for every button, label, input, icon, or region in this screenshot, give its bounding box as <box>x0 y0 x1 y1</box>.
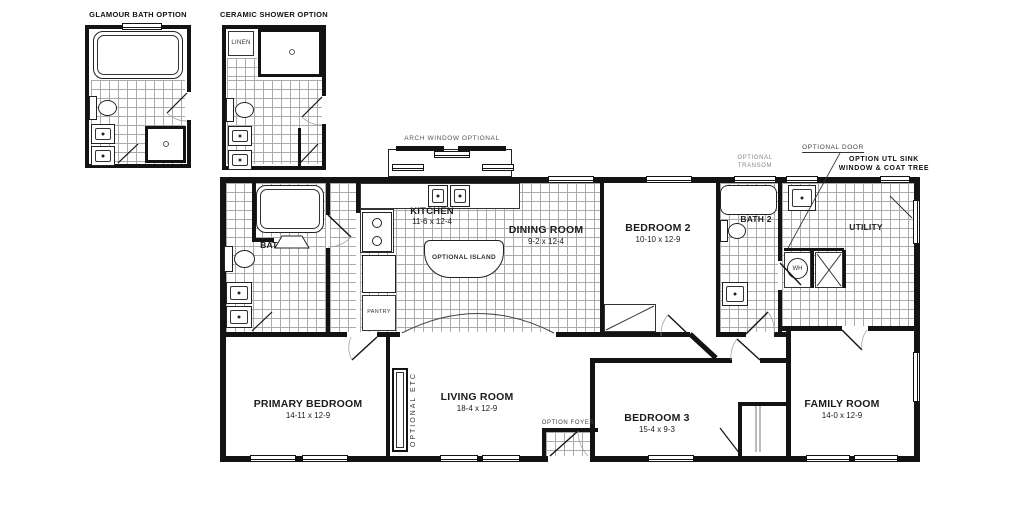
floorplan-canvas: GLAMOUR BATH OPTION CERAMIC SHOWER OPTIO… <box>0 0 1024 509</box>
primary-window-2 <box>302 455 348 462</box>
kitchen-sink-right-bowl <box>450 185 470 207</box>
front-door-opening <box>548 456 590 462</box>
bath2-toilet-tank <box>720 220 728 242</box>
kitchen-optional-island: OPTIONAL ISLAND <box>424 240 504 278</box>
glamour-shower <box>145 126 186 163</box>
utility-family-door-arc <box>862 330 867 350</box>
optional-transom-note-1: OPTIONAL <box>737 155 772 161</box>
wall-segment <box>602 332 690 337</box>
glamour-sink-2 <box>91 146 115 166</box>
bath2-transom-window <box>734 176 776 183</box>
option-utl-sink-note-2: WINDOW & COAT TREE <box>839 165 929 172</box>
bath-label: BATH <box>260 240 284 250</box>
range-burner-1 <box>372 218 382 228</box>
dryer-box <box>815 252 843 288</box>
primary-bedroom-label: PRIMARY BEDROOM 14-11 x 12-9 <box>254 398 363 420</box>
ceramic-linen-closet: LINEN <box>228 31 254 56</box>
wall-segment <box>760 358 786 363</box>
wall-segment <box>386 332 390 456</box>
wall-segment <box>590 358 732 363</box>
wall-segment <box>220 332 347 337</box>
bath-toilet-tank <box>224 246 233 272</box>
glamour-garden-tub <box>93 31 183 79</box>
utility-side-window <box>913 200 920 244</box>
option-utl-sink-note-1: OPTION UTL SINK <box>849 156 919 163</box>
wall-segment <box>778 183 782 261</box>
dining-label: DINING ROOM 9-2 x 12-4 <box>509 224 584 246</box>
wall-segment <box>786 326 791 456</box>
wall-segment <box>738 402 786 406</box>
wall-segment <box>542 428 546 456</box>
wall-segment <box>326 183 330 215</box>
glamour-toilet-tank <box>89 96 97 120</box>
kitchen-sink-left-bowl <box>428 185 448 207</box>
ceramic-shower <box>258 29 322 77</box>
bath-garden-tub <box>256 185 324 233</box>
glamour-door-opening <box>187 92 191 120</box>
bedroom2-label: BEDROOM 2 10-10 x 12-9 <box>625 222 690 244</box>
wall-segment <box>326 248 330 332</box>
bedroom3-closet-door-leaf <box>720 428 740 454</box>
bath-tub-basin <box>260 189 320 229</box>
glamour-sink-1 <box>91 124 115 144</box>
living-room-label: LIVING ROOM 18-4 x 12-9 <box>441 391 514 413</box>
bedroom2-angled-wall <box>690 334 716 358</box>
bedroom3-label: BEDROOM 3 15-4 x 9-3 <box>624 412 689 434</box>
wall-segment <box>542 428 598 432</box>
bath2-tub <box>720 185 777 215</box>
bay-left-window <box>392 164 424 171</box>
glamour-toilet-bowl <box>98 100 117 116</box>
bedroom3-door-leaf <box>737 339 760 360</box>
water-heater-icon: WH <box>787 258 808 279</box>
kitchen-pantry: PANTRY <box>362 295 396 331</box>
family-window-1 <box>806 455 850 462</box>
option-foyer-note: OPTION FOYER <box>542 420 595 426</box>
hall-tile-floor <box>330 183 356 332</box>
bath-sink-1 <box>226 282 252 304</box>
utility-family-door-leaf <box>842 330 862 350</box>
utility-label: UTILITY <box>849 222 883 232</box>
living-window-2 <box>482 455 520 462</box>
optional-etc-cabinet <box>392 368 408 452</box>
family-side-window <box>913 352 920 402</box>
wall-segment <box>868 326 914 331</box>
family-room-label: FAMILY ROOM 14-0 x 12-9 <box>804 398 879 420</box>
primary-door-arc <box>349 337 352 360</box>
ceramic-inset-title: CERAMIC SHOWER OPTION <box>220 10 328 19</box>
bedroom2-window <box>646 176 692 183</box>
ceramic-toilet-tank <box>226 98 234 122</box>
primary-door-leaf <box>352 337 377 360</box>
wall-segment <box>716 332 746 337</box>
ceramic-sink-2 <box>228 150 252 170</box>
optional-etc-label: OPTIONAL ETC <box>410 372 417 447</box>
ceramic-sink-1 <box>228 126 252 146</box>
dining-window <box>548 176 594 183</box>
foyer-tile-floor <box>546 432 590 456</box>
ceramic-door-opening <box>322 96 326 124</box>
ceramic-toilet-bowl <box>235 102 254 118</box>
arch-window-note: ARCH WINDOW OPTIONAL <box>404 135 499 142</box>
bedroom3-door-arc <box>731 339 737 360</box>
optional-transom-note-2: TRANSOM <box>738 163 772 169</box>
wall-segment <box>298 128 301 166</box>
pantry-label: PANTRY <box>363 309 395 315</box>
glamour-tub-basin <box>97 35 179 75</box>
ceramic-linen-label: LINEN <box>229 40 253 46</box>
kitchen-fridge <box>362 255 396 293</box>
bath2-label: BATH 2 <box>740 214 771 224</box>
bath2-toilet-bowl <box>728 223 746 239</box>
bath2-sink <box>722 282 748 306</box>
wall-segment <box>590 358 595 456</box>
range-burner-2 <box>372 236 382 246</box>
glamour-window <box>122 23 162 30</box>
bay-center-window <box>434 151 470 158</box>
family-window-2 <box>854 455 898 462</box>
glamour-inset-title: GLAMOUR BATH OPTION <box>89 10 187 19</box>
kitchen-label: KITCHEN 11-6 x 12-4 <box>410 206 454 227</box>
bath-toilet-bowl <box>234 250 255 268</box>
optional-door-note: OPTIONAL DOOR <box>802 144 864 153</box>
utility-sink-window <box>786 176 818 183</box>
bay-right-window <box>482 164 514 171</box>
bedroom2-dresser <box>604 304 656 332</box>
wall-segment <box>556 332 602 337</box>
optional-island-label: OPTIONAL ISLAND <box>425 254 503 261</box>
living-window-1 <box>440 455 478 462</box>
bath-sink-2 <box>226 306 252 328</box>
primary-window-1 <box>250 455 296 462</box>
coat-tree-window <box>880 176 910 183</box>
bedroom3-window <box>648 455 694 462</box>
wall-segment <box>774 332 786 337</box>
wall-segment <box>784 248 844 251</box>
wall-segment <box>738 402 742 456</box>
utility-sink <box>788 185 816 211</box>
